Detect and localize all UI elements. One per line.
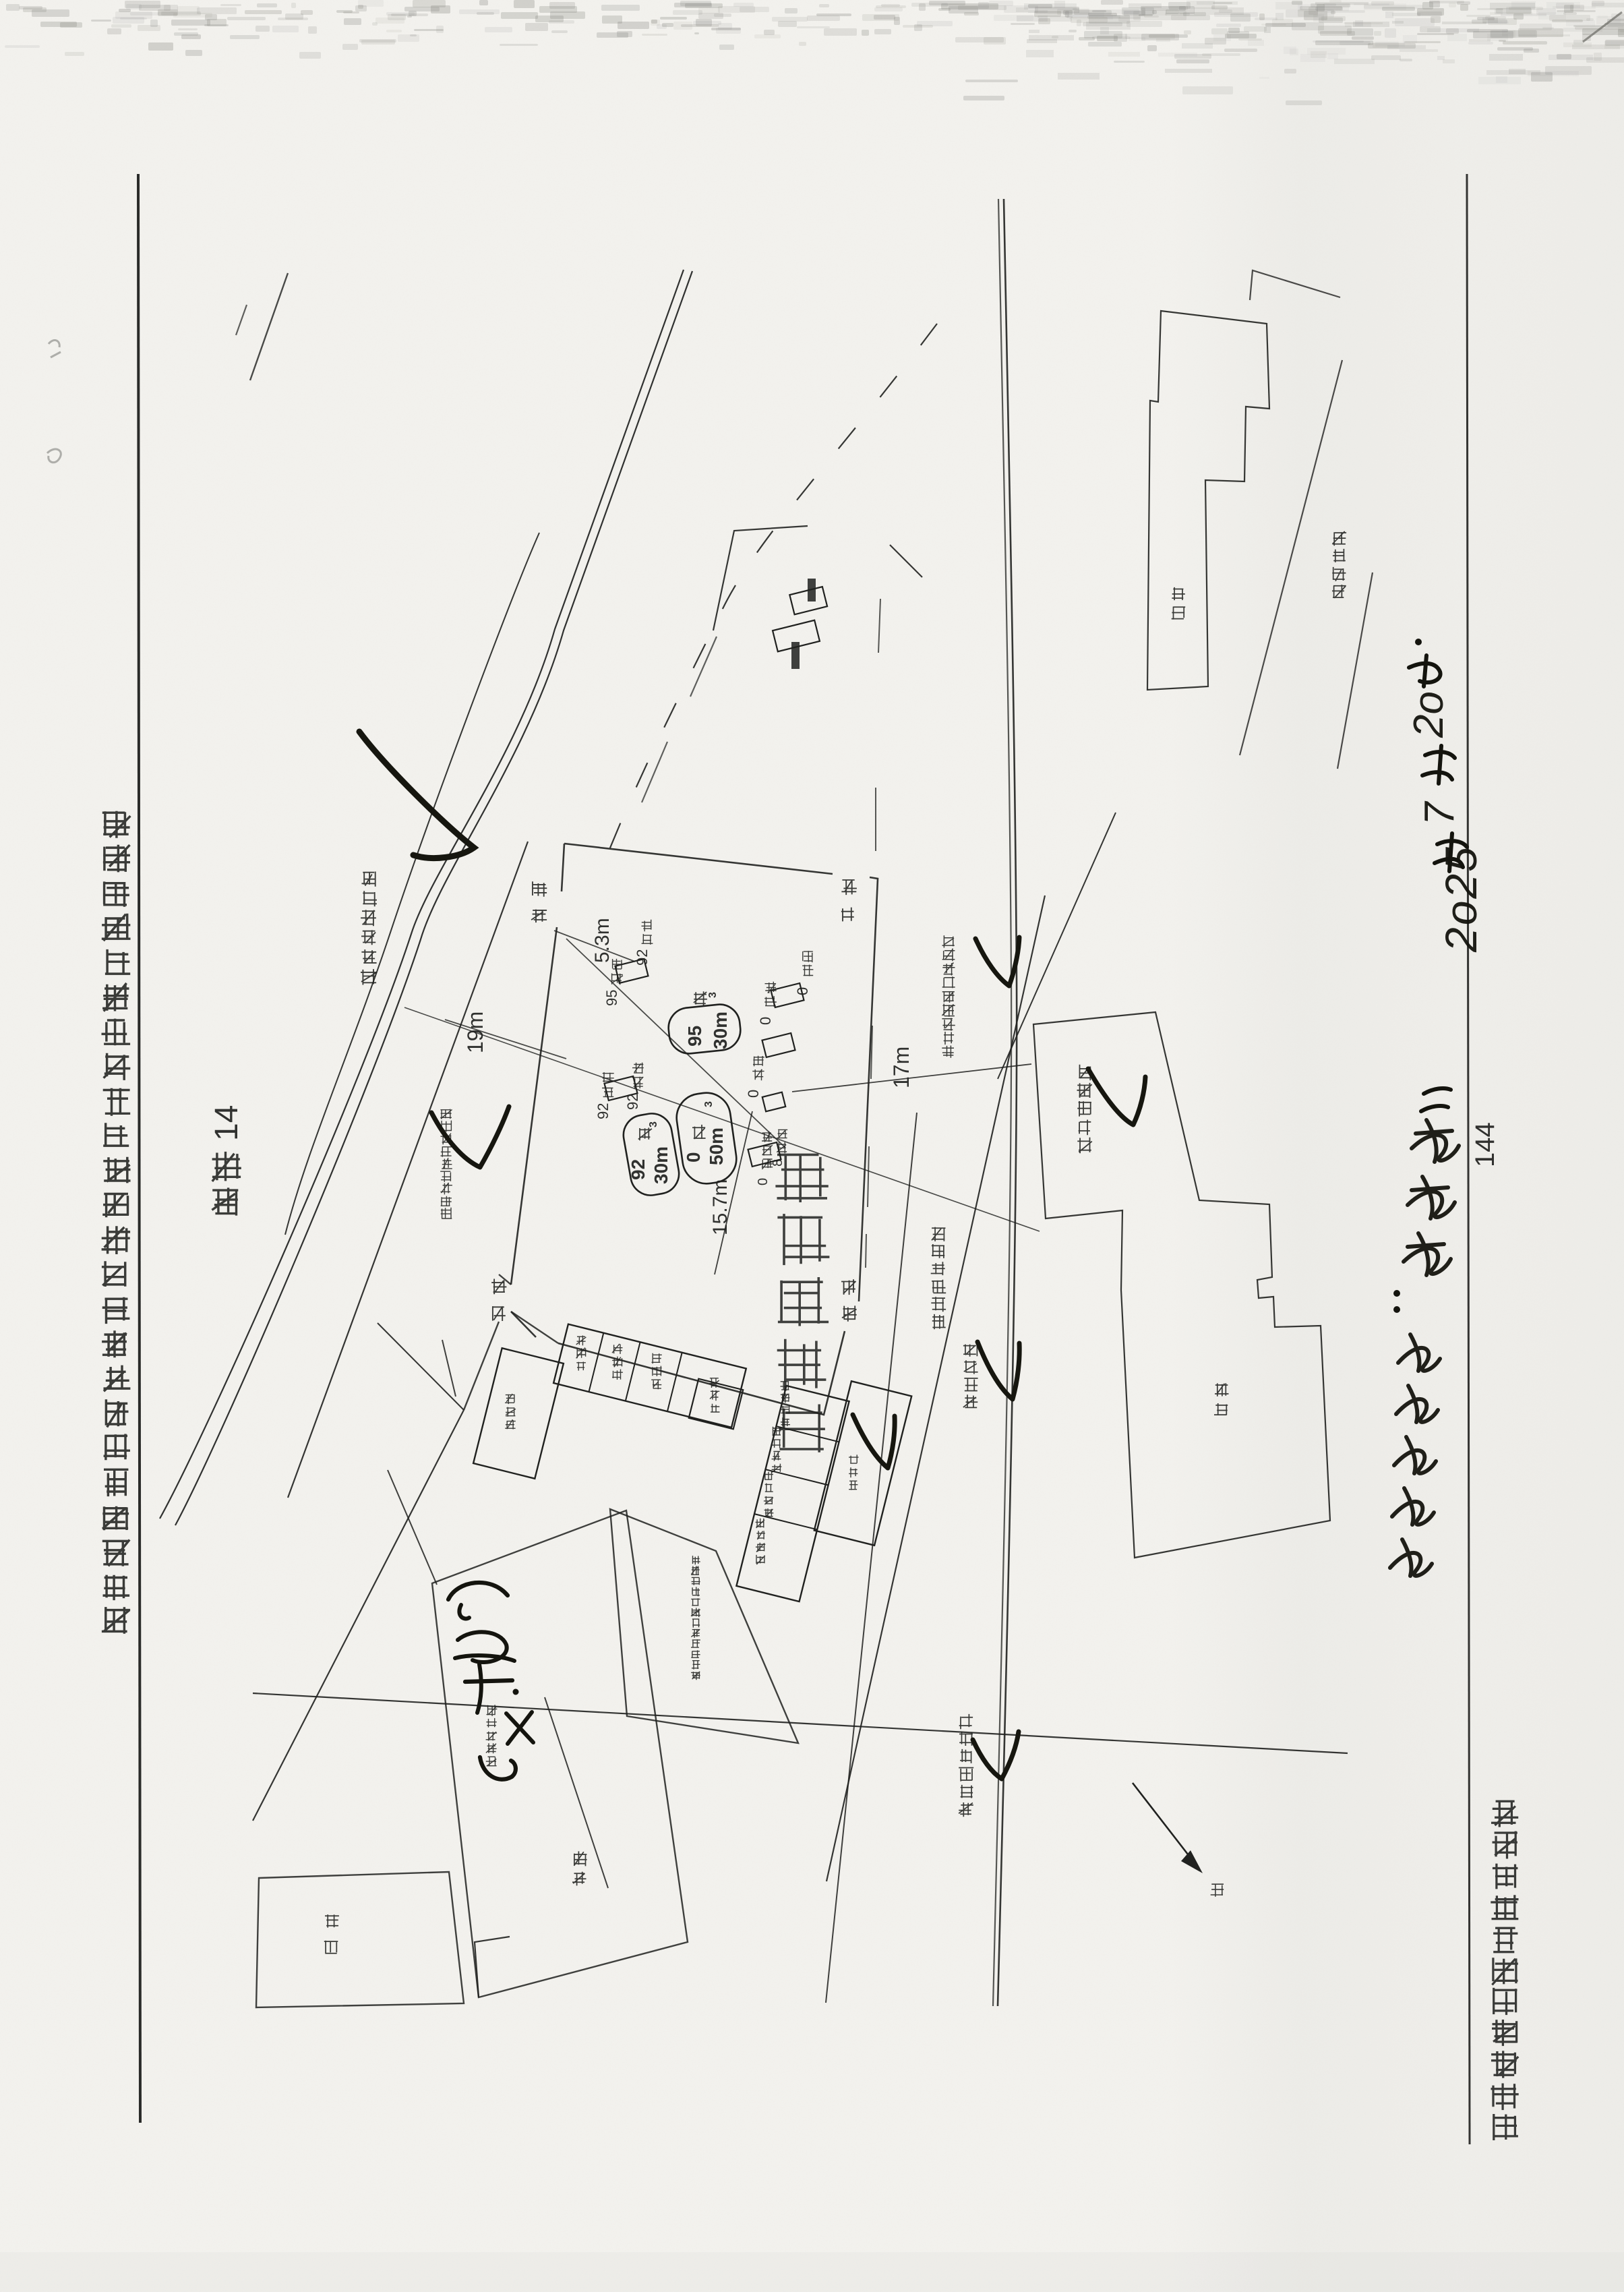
svg-text:8: 8 bbox=[771, 1159, 785, 1167]
svg-text:3: 3 bbox=[648, 1121, 659, 1127]
svg-text:30m: 30m bbox=[651, 1146, 671, 1184]
svg-text:92: 92 bbox=[595, 1103, 611, 1119]
svg-text:7: 7 bbox=[1416, 800, 1463, 825]
svg-text:92: 92 bbox=[624, 1094, 641, 1110]
svg-text:144: 144 bbox=[1470, 1122, 1500, 1167]
svg-text:19m: 19m bbox=[463, 1011, 487, 1053]
svg-text:95: 95 bbox=[603, 990, 620, 1006]
svg-text:15.7m: 15.7m bbox=[709, 1179, 731, 1235]
svg-text:5.3m: 5.3m bbox=[591, 918, 613, 963]
svg-text:95: 95 bbox=[684, 1026, 705, 1047]
svg-text:0: 0 bbox=[757, 1017, 774, 1025]
svg-text:3: 3 bbox=[707, 992, 719, 998]
svg-text:30m: 30m bbox=[710, 1011, 731, 1049]
svg-text:92: 92 bbox=[634, 949, 651, 966]
svg-text:0: 0 bbox=[683, 1152, 704, 1163]
svg-text:3: 3 bbox=[703, 1101, 715, 1107]
svg-text:0: 0 bbox=[756, 1178, 771, 1185]
svg-text:50m: 50m bbox=[706, 1127, 727, 1165]
svg-text:14: 14 bbox=[209, 1105, 245, 1141]
svg-text:0: 0 bbox=[745, 1090, 762, 1098]
svg-text:92: 92 bbox=[628, 1159, 649, 1180]
svg-text:0: 0 bbox=[794, 987, 811, 995]
svg-text:2o: 2o bbox=[1406, 691, 1452, 738]
svg-text:17m: 17m bbox=[889, 1047, 913, 1088]
